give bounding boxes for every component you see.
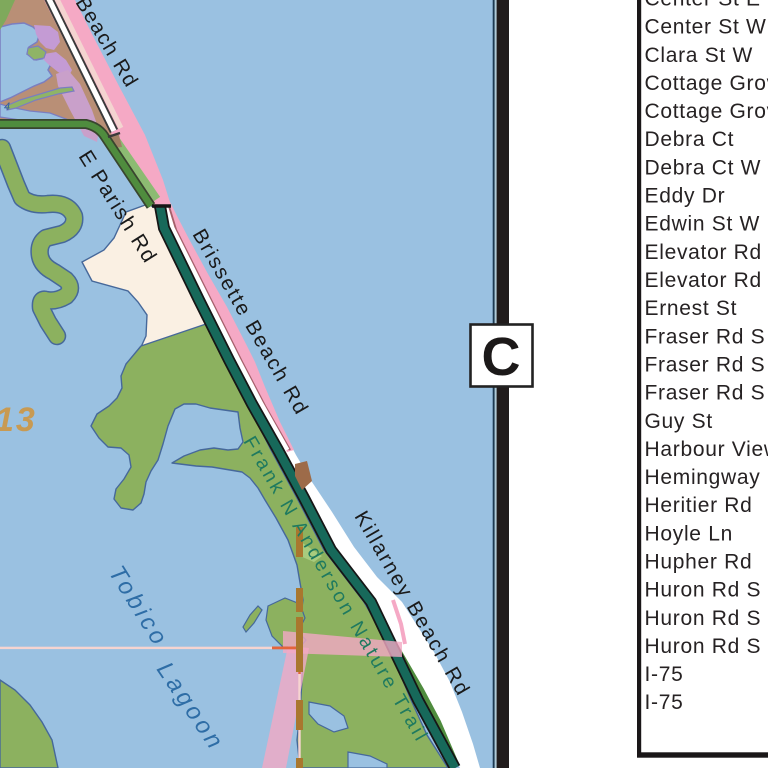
svg-text:Guy St: Guy St (645, 410, 713, 433)
svg-text:Center St E: Center St E (645, 0, 761, 11)
svg-text:Huron Rd S: Huron Rd S (645, 579, 762, 602)
svg-text:Elevator Rd: Elevator Rd (645, 269, 762, 292)
svg-text:Elevator Rd: Elevator Rd (645, 241, 762, 264)
svg-text:Center St W: Center St W (645, 16, 767, 39)
svg-text:Huron Rd S: Huron Rd S (645, 607, 762, 630)
svg-text:Heritier Rd: Heritier Rd (645, 494, 753, 517)
svg-text:Fraser Rd S: Fraser Rd S (645, 353, 766, 376)
svg-text:Hupher Rd: Hupher Rd (645, 551, 753, 574)
svg-text:Huron Rd S: Huron Rd S (645, 635, 762, 658)
svg-text:C: C (482, 327, 521, 387)
svg-text:Cottage Grov: Cottage Grov (645, 100, 768, 123)
svg-text:Harbour View: Harbour View (645, 438, 768, 461)
svg-text:13: 13 (0, 401, 37, 439)
svg-text:4: 4 (4, 101, 10, 113)
svg-text:Hoyle Ln: Hoyle Ln (645, 522, 733, 545)
svg-text:Fraser Rd S: Fraser Rd S (645, 325, 766, 348)
svg-text:Debra Ct W: Debra Ct W (645, 156, 762, 179)
svg-text:Clara St W: Clara St W (645, 44, 754, 67)
svg-text:Ernest St: Ernest St (645, 297, 738, 320)
svg-text:Edwin St W: Edwin St W (645, 213, 761, 236)
svg-text:I-75: I-75 (645, 663, 684, 686)
svg-text:Eddy Dr: Eddy Dr (645, 185, 726, 208)
svg-text:Hemingway: Hemingway (645, 466, 761, 489)
svg-text:I-75: I-75 (645, 691, 684, 714)
svg-text:Debra Ct: Debra Ct (645, 128, 735, 151)
svg-text:Fraser Rd S: Fraser Rd S (645, 382, 766, 405)
svg-text:Cottage Grov: Cottage Grov (645, 72, 768, 95)
